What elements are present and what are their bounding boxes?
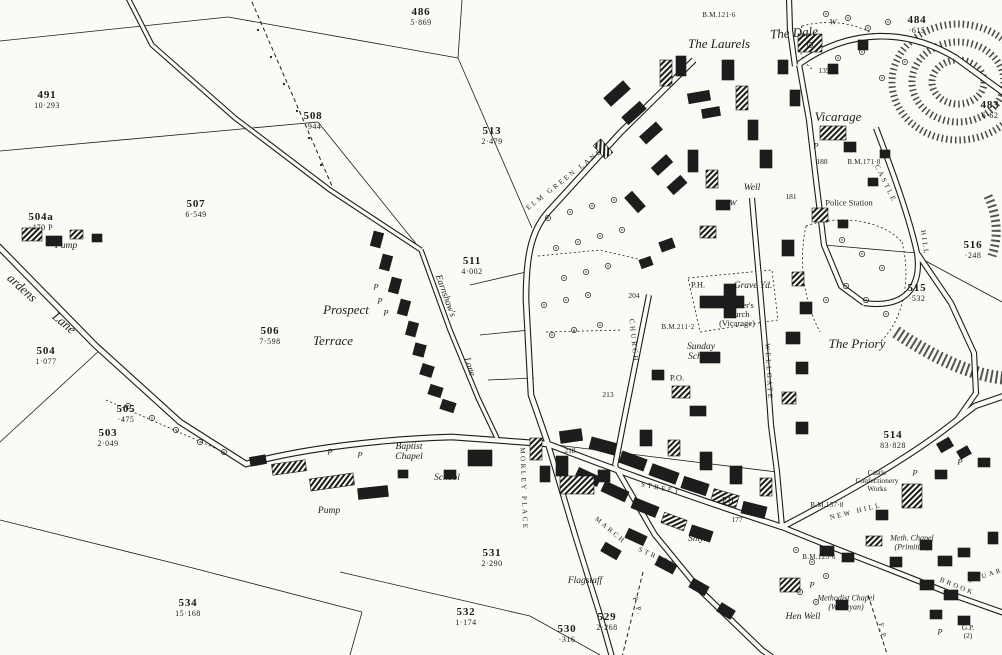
poi-baptist-chapel: BaptistChapel [395,442,422,463]
well-marker: W [829,17,836,26]
poi-hen-well: Hen Well [786,612,821,622]
street-castle-hill: HILL [918,230,929,257]
poi-grave-yard: Grave Yd. [734,281,773,291]
poi-st-peters-church: St. Peter'sChurch(Vicarage) [719,301,755,329]
poi-methodist-chapel-primitive: Meth. Chapel(Primitive) [890,534,934,551]
poi-pump: Pump [55,241,77,251]
street-elm-green-lane: ELM GREEN LANE [525,148,605,213]
footpath-label: F.P. [630,596,643,617]
poi-guide-post: G.P.(2) [962,624,975,640]
street-brook-square: BROOK [938,577,975,598]
poi-flagstaff: Flagstaff [568,576,602,586]
parcel-529: 5292·268 [596,612,617,633]
parcel-484: 484·615 [908,15,927,36]
spot-height: 188 [816,158,827,166]
parcel-531: 5312·290 [481,548,502,569]
poi-well: Well [744,183,761,193]
pump-marker: P [377,296,382,305]
poi-sunday-school: SundaySchool [687,342,715,363]
street-label: STREET [640,481,681,496]
poi-methodist-chapel-wesleyan: Methodist Chapel(Wesleyan) [817,594,874,611]
place-vicarage: Vicarage [815,110,862,124]
poi-smithy: Smy. [688,534,706,544]
pump-marker: P [809,580,814,589]
spot-height: 204 [628,292,639,300]
parcel-508: 508·944 [304,111,323,132]
pump-marker: P [373,282,378,291]
pump-marker: P [357,450,362,459]
parcel-506: 5067·598 [259,326,280,347]
spot-height: 177 [731,516,742,524]
street-wellgate: WELLGATE [763,343,774,401]
parcel-486: 4865·869 [410,7,431,28]
spot-height: 213 [602,391,613,399]
benchmark: B.M.121·6 [702,12,735,20]
parcel-532: 5321·174 [455,607,476,628]
pump-marker: P [327,447,332,456]
poi-school: School [434,473,460,483]
parcel-504a: 504a·470 P [28,212,53,233]
parcel-135: 135 [818,67,829,75]
place-the-laurels: The Laurels [688,37,750,51]
poi-public-house: P.H. [691,280,705,289]
pump-marker: P [912,468,917,477]
poi-police-station: Police Station [825,198,872,207]
parcel-514: 51483·828 [880,430,906,451]
poi-castle-confectionery-works: CastleConfectioneryWorks [856,469,899,493]
well-marker: W [729,198,736,207]
street-gardens-lane: ardens [4,271,39,305]
street-brook-square: SQUARE [967,565,1002,585]
benchmark: B.M.211·2 [661,324,694,332]
os-town-plan-map: 4865·86949110·293508·9445132·4795076·549… [0,0,1002,655]
poi-post-office: P.O. [670,373,684,382]
parcel-516: 516·248 [964,240,983,261]
place-the-priory: The Priory [829,337,886,351]
parcel-513: 5132·479 [481,126,502,147]
street-earnshaws-lane: Lane [461,356,477,377]
pump-marker: P [957,457,962,466]
spot-height: 181 [785,193,796,201]
parcel-504: 5041·077 [35,346,56,367]
parcel-505: 505·475 [117,404,136,425]
map-labels-layer: 4865·86949110·293508·9445132·4795076·549… [0,0,1002,655]
parcel-483: 4836·62 [981,100,1000,121]
street-church: CHURCH [627,319,639,364]
parcel-534: 53415·168 [175,598,201,619]
benchmark: B.M.125·6 [802,554,835,562]
place-prospect-terrace: Terrace [313,334,353,348]
pump-marker: P [937,627,942,636]
parcel-503: 5032·049 [97,428,118,449]
poi-pump: Pump [318,506,340,516]
pump-marker: P [813,141,818,150]
street-gardens-lane: Lane [50,309,79,336]
street-morley-place: MORLEY PLACE [518,447,528,530]
parcel-491: 49110·293 [34,90,60,111]
spot-height: 218 [564,447,575,455]
parcel-507: 5076·549 [185,199,206,220]
benchmark: B.M.157·8 [810,502,843,510]
benchmark: B.M.171·8 [847,159,880,167]
parcel-530: 530·316 [558,624,577,645]
street-castle-hill: CASTLE [873,164,898,205]
pump-marker: P [383,308,388,317]
footpath-label: F.P. [876,622,888,643]
place-the-dale: The Dale [770,24,819,41]
poi-public-house: P.H. [722,495,736,504]
street-new-hill: NEW HILL [829,502,883,522]
street-march: MARCH [593,516,627,546]
parcel-515: 515·532 [908,283,927,304]
place-prospect-terrace: Prospect [323,303,369,317]
parcel-511: 5114·002 [461,256,482,277]
street-label: STREET [637,546,677,569]
street-earnshaws-lane: Earnshaw's [433,273,458,318]
